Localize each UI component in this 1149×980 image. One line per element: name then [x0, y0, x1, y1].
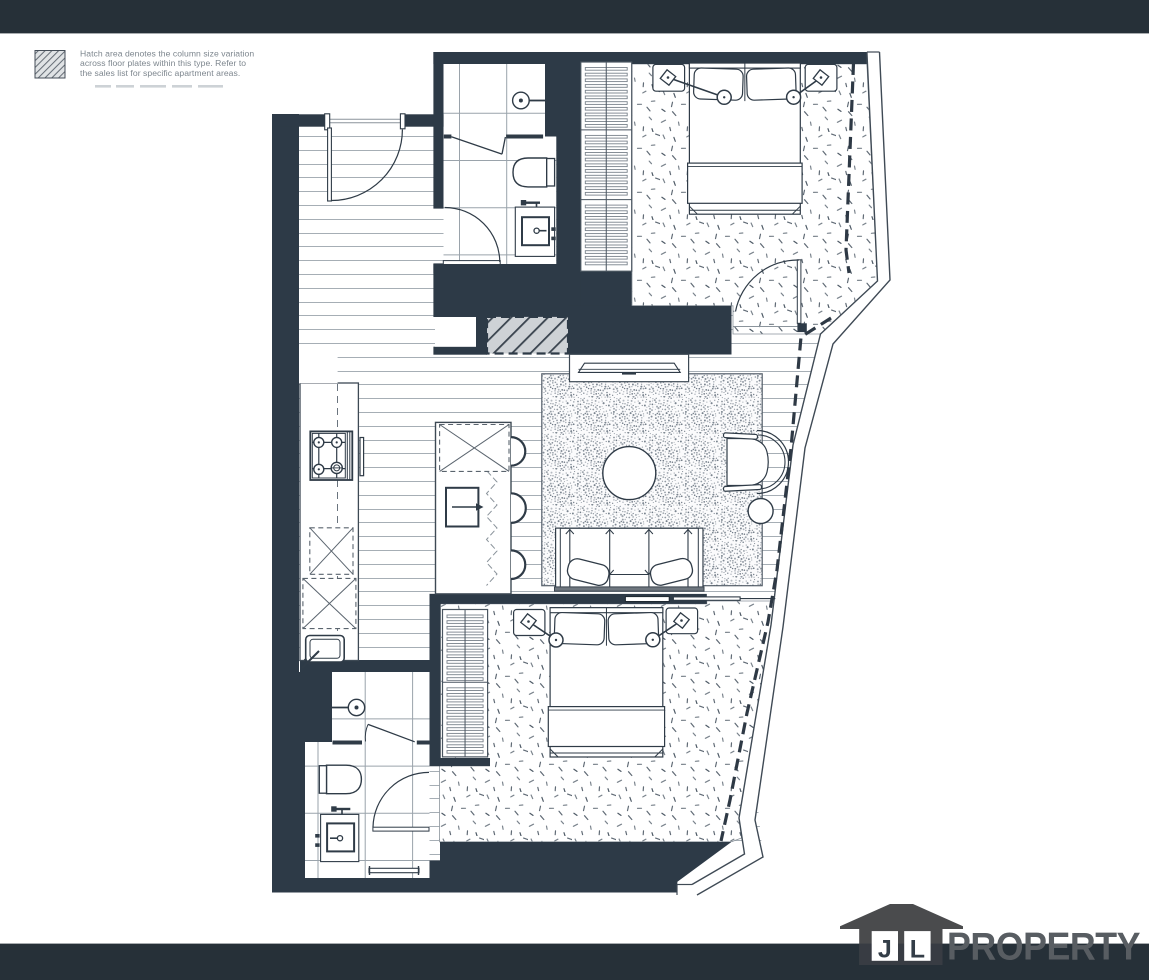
svg-text:L: L [910, 936, 925, 964]
svg-text:Hatch area denotes the column: Hatch area denotes the column size varia… [80, 49, 254, 59]
svg-text:PROPERTY: PROPERTY [947, 926, 1141, 969]
svg-text:the sales list for specific ap: the sales list for specific apartment ar… [80, 68, 240, 78]
svg-text:J: J [878, 936, 892, 964]
svg-text:across floor plates within thi: across floor plates within this type. Re… [80, 58, 246, 68]
